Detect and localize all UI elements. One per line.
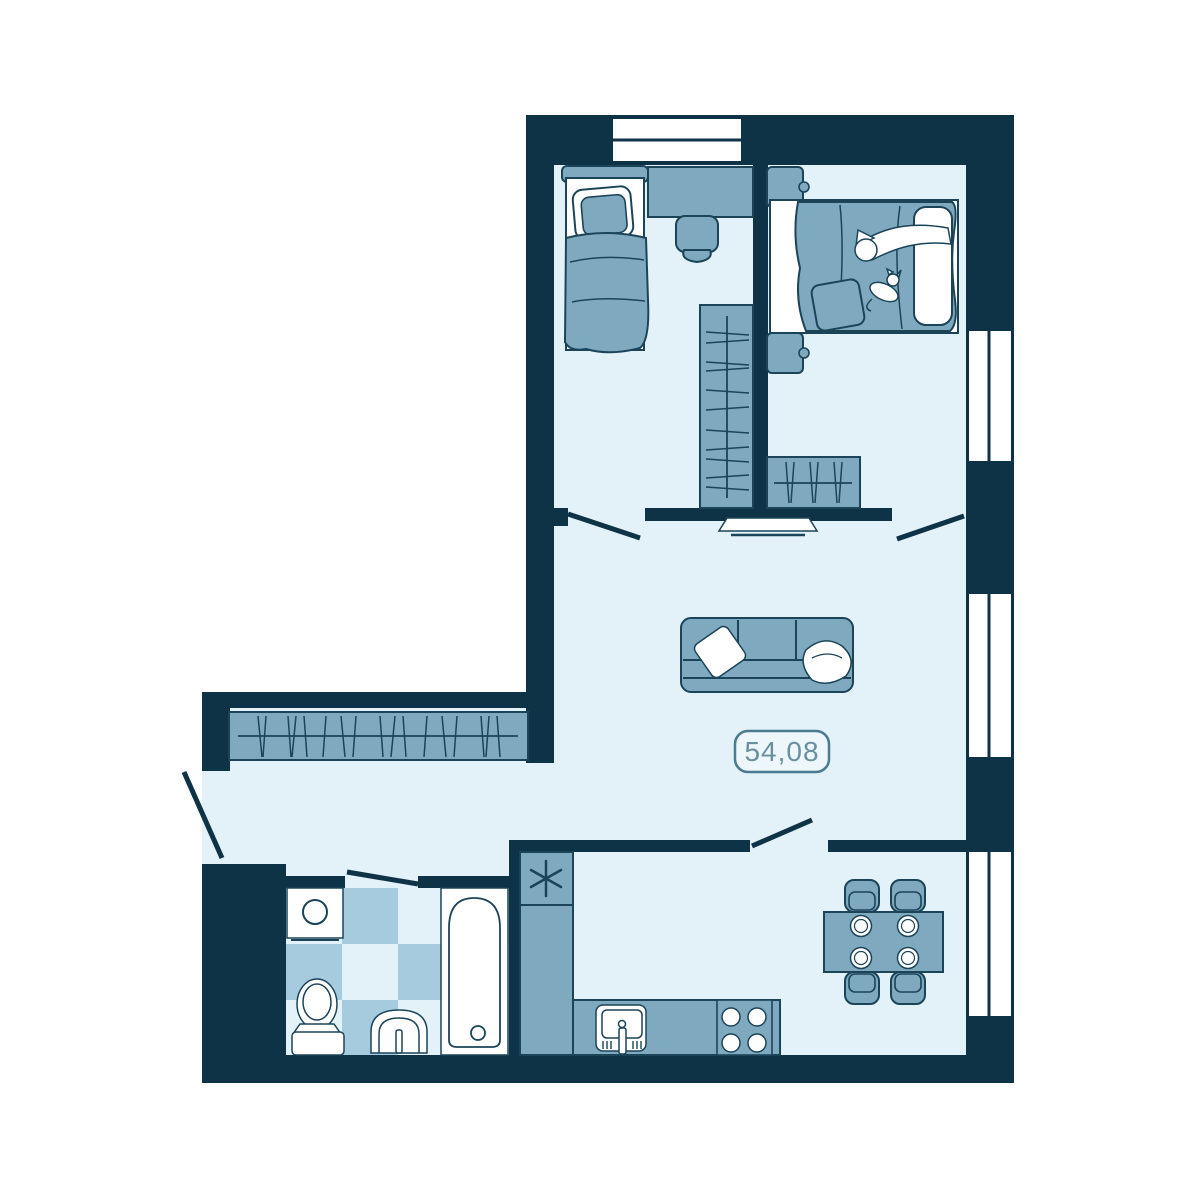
dining-chair-icon — [845, 880, 879, 912]
bathtub-icon — [441, 888, 508, 1055]
kitchen-sink-icon — [596, 1005, 646, 1054]
window-right-upper — [968, 330, 1012, 462]
nightstand-icon — [767, 333, 809, 373]
dining-chair-icon — [891, 880, 925, 912]
hallway-wardrobe-icon — [229, 712, 528, 760]
wardrobe-tall-icon — [700, 305, 753, 508]
floor-plan-page: 54,08 — [0, 0, 1200, 1200]
fridge-icon — [520, 852, 573, 905]
dining-chair-icon — [891, 972, 925, 1004]
window-right-middle — [968, 593, 1012, 758]
sofa-icon — [681, 618, 853, 692]
single-bed-icon — [562, 166, 648, 352]
area-value: 54,08 — [744, 736, 819, 767]
dining-chair-icon — [845, 972, 879, 1004]
area-label: 54,08 — [735, 731, 829, 772]
dining-table-icon — [824, 912, 943, 972]
desk-icon — [648, 167, 753, 217]
wardrobe-low-icon — [767, 457, 860, 508]
window-right-lower — [968, 851, 1012, 1017]
double-bed-icon — [770, 200, 958, 333]
bathroom-sink-icon — [371, 1010, 427, 1053]
floor-plan: 54,08 — [0, 0, 1200, 1200]
stove-icon — [717, 1000, 772, 1055]
washing-machine-icon — [287, 888, 343, 940]
window-top — [612, 118, 742, 162]
